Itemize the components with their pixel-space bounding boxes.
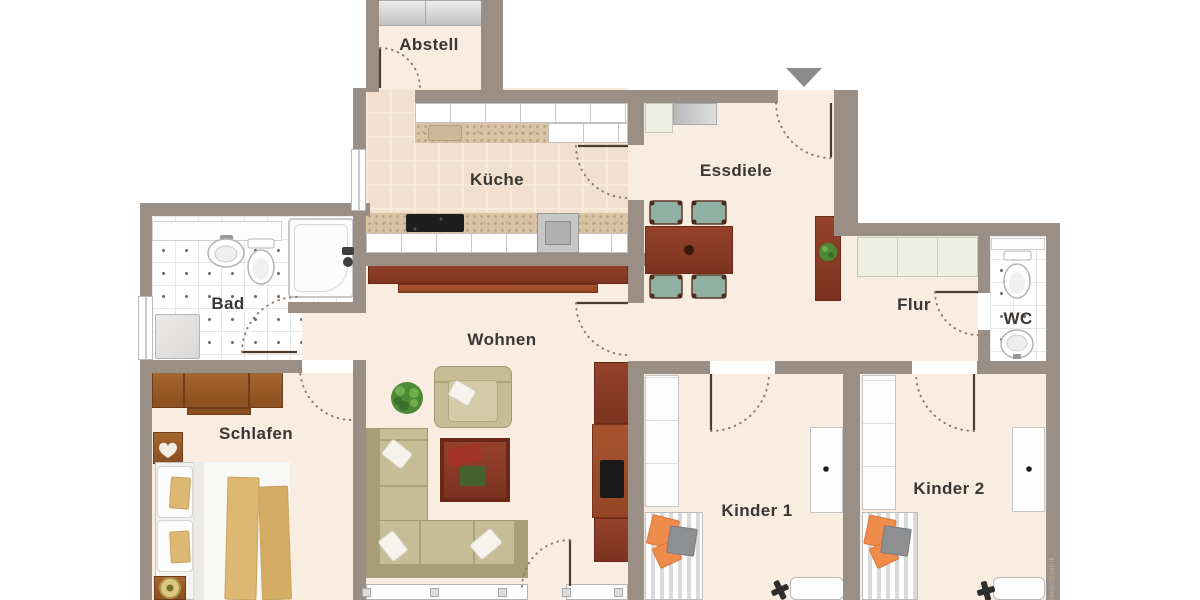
room-label-kueche: Küche — [470, 170, 524, 190]
schlafen-door-arc — [300, 368, 352, 420]
wohnen-plant-icon — [391, 382, 423, 414]
door-leaves — [242, 48, 978, 586]
room-label-abstell: Abstell — [399, 35, 458, 55]
room-label-essdiele: Essdiele — [700, 161, 772, 181]
bad-fixtures — [208, 235, 354, 284]
kinder1-door-arc — [711, 373, 769, 431]
cooktop-knob-2 — [440, 218, 443, 221]
kinder2-door-arc — [916, 373, 974, 431]
wc-sink-faucet-icon — [1013, 354, 1021, 359]
door-arcs — [242, 48, 978, 588]
kueche-door-arc — [576, 146, 628, 198]
kinder1-cabinet-knob-icon — [823, 466, 829, 472]
wc-sink-basin — [1007, 335, 1027, 351]
room-label-wohnen: Wohnen — [467, 330, 536, 350]
kinder2-desk-chair-icon — [975, 579, 998, 600]
kinder2-cabinet-knob-icon — [1026, 466, 1032, 472]
bad-sink-basin — [215, 246, 237, 262]
bathtub-drain-icon — [343, 257, 353, 267]
plan-overlay — [0, 0, 1200, 600]
dining-chair-2 — [692, 201, 726, 224]
dining-table-center — [684, 245, 694, 255]
bad-toilet-tank — [248, 239, 274, 248]
nightstand-lamp-center — [167, 585, 174, 592]
dining-chair-3 — [650, 275, 682, 298]
room-label-wc: WC — [1003, 309, 1032, 329]
bathtub-faucet-icon — [342, 247, 354, 255]
headboard-heart-icon — [159, 443, 177, 458]
kinder1-desk-chair-icon — [768, 577, 793, 600]
room-label-kinder2: Kinder 2 — [913, 479, 984, 499]
wc-toilet-bowl — [1009, 272, 1025, 294]
room-label-flur: Flur — [897, 295, 931, 315]
room-label-kinder1: Kinder 1 — [721, 501, 792, 521]
entrance-door-arc — [776, 103, 831, 158]
bad-door-arc — [242, 297, 297, 352]
room-label-schlafen: Schlafen — [219, 424, 293, 444]
cooktop-knob-1 — [414, 228, 417, 231]
wc-fixtures — [1001, 251, 1033, 359]
wc-toilet-tank — [1004, 251, 1031, 260]
essdiele-plant-icon — [819, 243, 837, 261]
balcony-door-arc — [522, 540, 570, 588]
dining-chair-1 — [650, 201, 682, 224]
wc-door-arc — [935, 292, 978, 335]
entrance-arrow-icon — [786, 68, 822, 87]
dining-chair-4 — [692, 275, 726, 298]
wohnen-door-arc — [576, 303, 628, 355]
watermark-text: ImmoGraFik — [1049, 557, 1056, 600]
bad-toilet-bowl — [253, 258, 269, 280]
room-label-bad: Bad — [211, 294, 244, 314]
floor-plan: Abstell Küche Essdiele Bad Wohnen Flur W… — [0, 0, 1200, 600]
